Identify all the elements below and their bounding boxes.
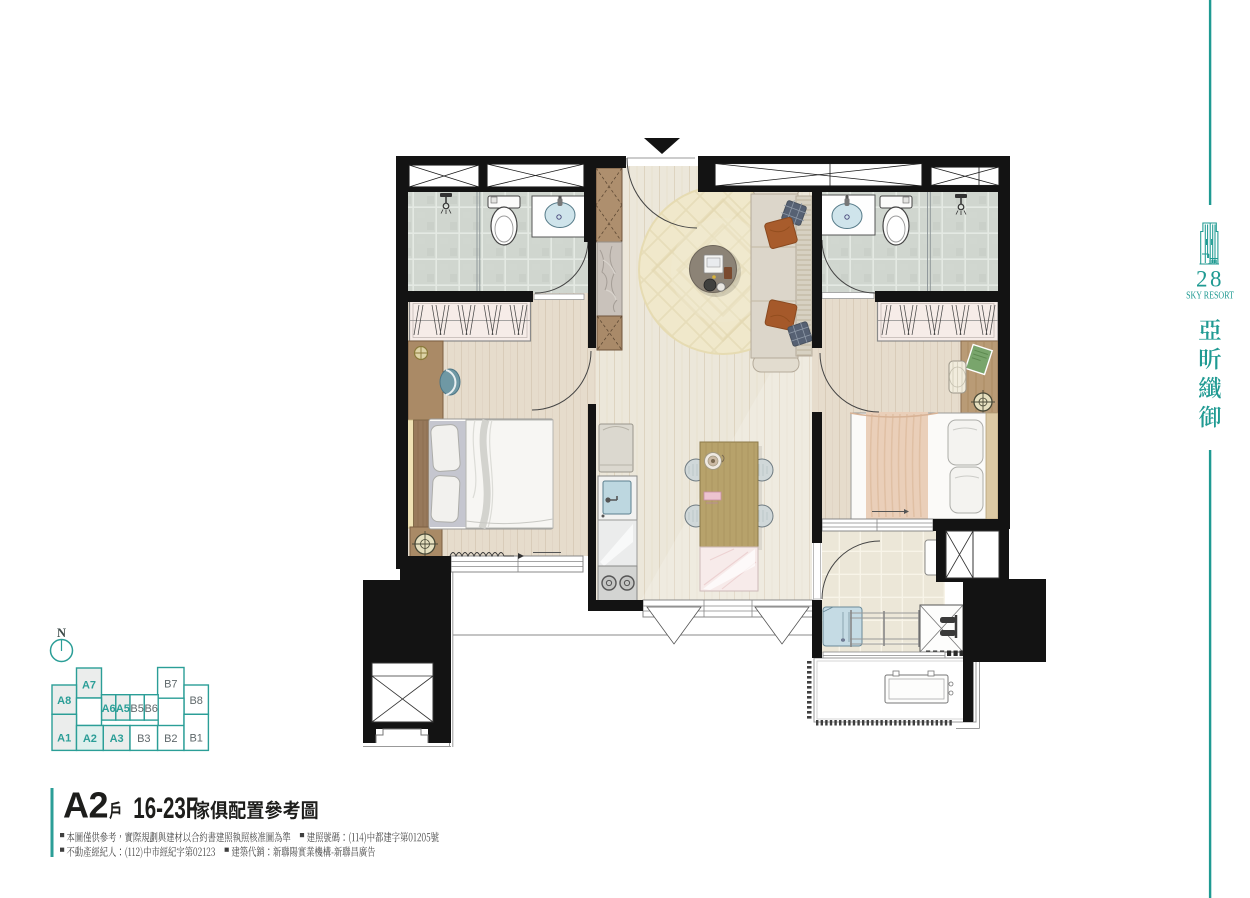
svg-text:B2: B2 xyxy=(164,733,177,745)
svg-text:B5: B5 xyxy=(130,703,143,715)
svg-text:A8: A8 xyxy=(57,695,71,707)
svg-text:B3: B3 xyxy=(137,733,150,745)
svg-text:A2: A2 xyxy=(63,785,108,826)
svg-text:SKY RESORT: SKY RESORT xyxy=(1186,290,1234,301)
svg-text:N: N xyxy=(57,626,66,640)
svg-text:28: 28 xyxy=(1196,267,1224,292)
svg-text:A7: A7 xyxy=(82,680,96,692)
svg-text:B1: B1 xyxy=(189,733,202,745)
svg-text:B7: B7 xyxy=(164,679,177,691)
svg-text:B6: B6 xyxy=(144,703,157,715)
svg-text:A1: A1 xyxy=(57,733,71,745)
svg-text:16-23F: 16-23F xyxy=(133,792,198,825)
svg-text:B8: B8 xyxy=(189,695,202,707)
svg-text:A2: A2 xyxy=(83,733,97,745)
svg-text:A5: A5 xyxy=(116,703,130,715)
svg-text:A6: A6 xyxy=(102,703,116,715)
svg-text:A3: A3 xyxy=(110,733,124,745)
